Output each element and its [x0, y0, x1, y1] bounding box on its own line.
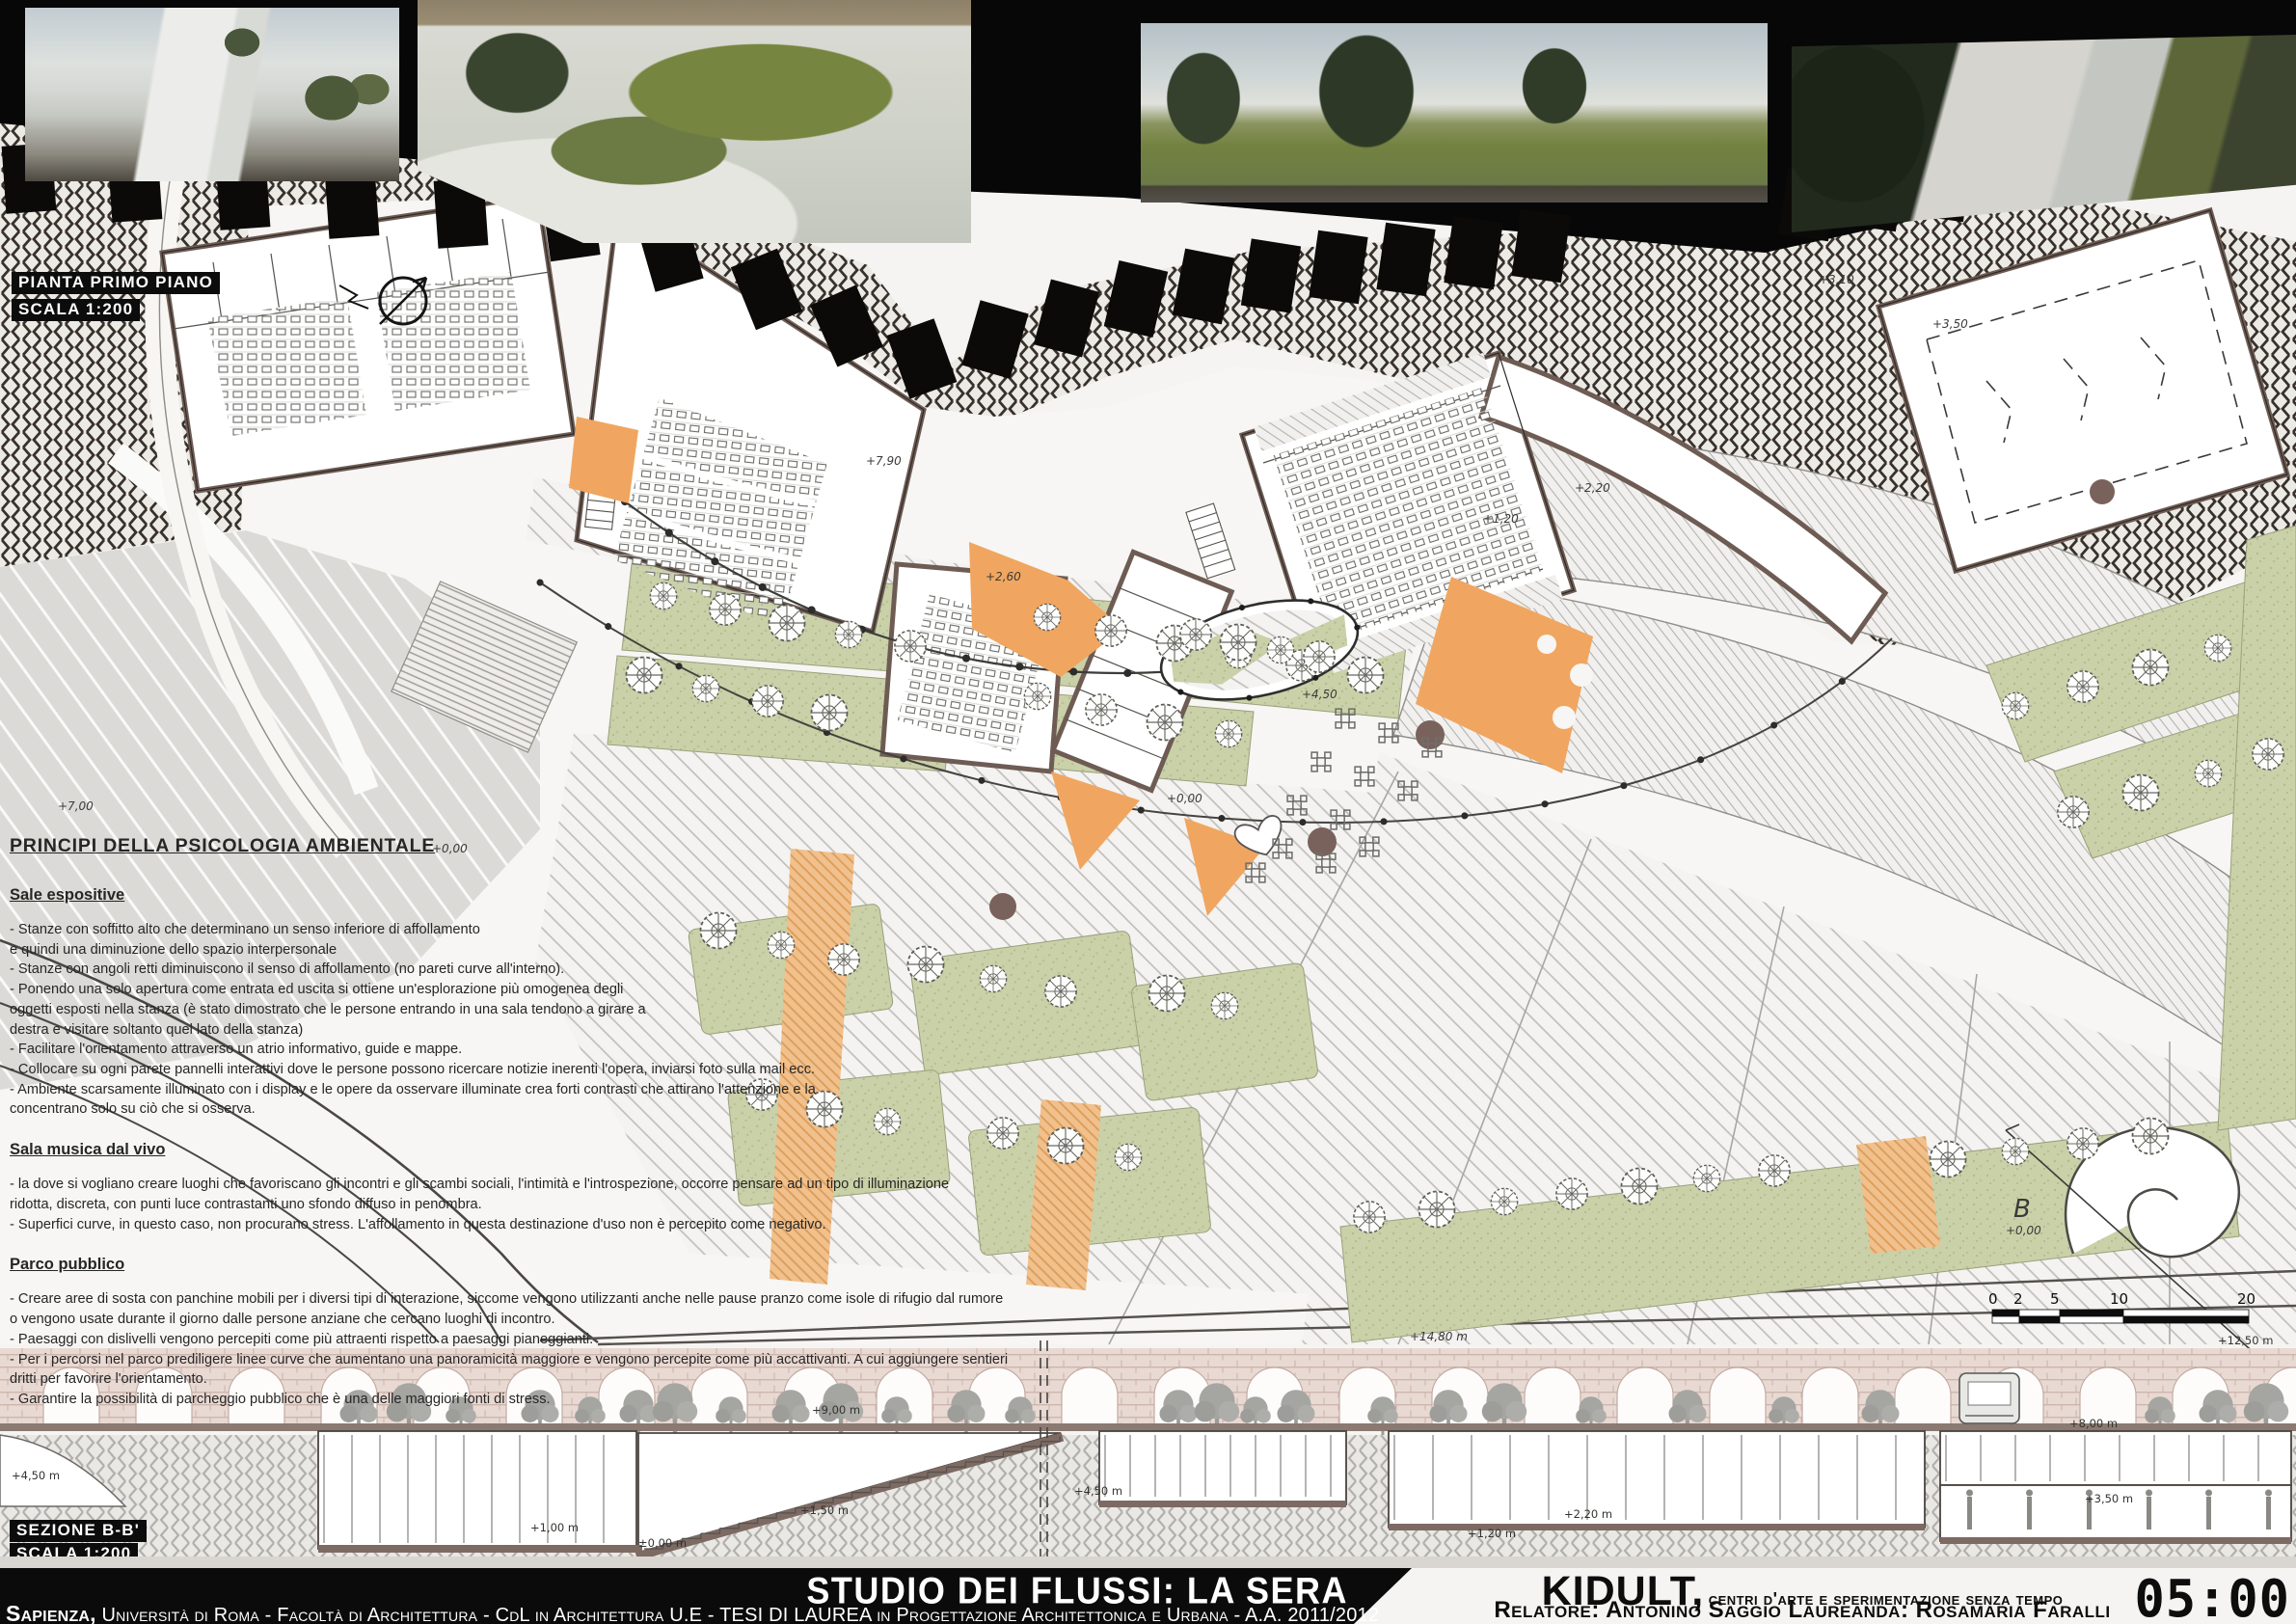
- tree-plan: [895, 631, 926, 662]
- skylight: [1309, 230, 1367, 305]
- tree-plan: [1147, 704, 1182, 740]
- tree-plan: [752, 686, 783, 717]
- section-title-parco-pubblico: Parco pubblico: [10, 1256, 1041, 1274]
- skylight: [1376, 223, 1435, 297]
- level-annotation: +1,00 m: [530, 1521, 579, 1534]
- roof-slab: [0, 1423, 2296, 1431]
- tree-plan: [1034, 604, 1060, 630]
- tree-plan: [2067, 1128, 2098, 1159]
- level-annotation: +3,50: [1932, 317, 1968, 331]
- arch: [1525, 1367, 1580, 1424]
- seats-fan-right: [376, 272, 530, 411]
- skylight: [1511, 209, 1570, 284]
- tree-plan: [1180, 619, 1211, 650]
- scale-label: 0: [1988, 1290, 1998, 1308]
- scale-label: 5: [2050, 1290, 2060, 1308]
- credits-line: Relatore: Antonino Saggio Laureanda: Ros…: [1435, 1597, 2170, 1624]
- level-annotation: +2,20: [1575, 481, 1610, 495]
- tree-plan: [692, 675, 718, 701]
- level-annotation: +7,90: [866, 454, 902, 468]
- tree-plan: [2132, 1118, 2168, 1153]
- level-annotation: +4,50 m: [1074, 1484, 1122, 1498]
- tree-plan: [2058, 797, 2089, 827]
- tree-plan: [1095, 615, 1126, 646]
- level-annotation: +8,00 m: [2069, 1417, 2118, 1430]
- level-annotation: +3,10: [1819, 273, 1854, 286]
- tree-plan: [2002, 1138, 2028, 1164]
- section-body-parco-pubblico: - Creare aree di sosta con panchine mobi…: [10, 1289, 1041, 1409]
- tree-plan: [2253, 739, 2283, 770]
- tree-plan: [1148, 975, 1184, 1011]
- arch: [1710, 1367, 1766, 1424]
- section-title-sale-espositive: Sale espositive: [10, 886, 1041, 905]
- section-title-sala-musica: Sala musica dal vivo: [10, 1141, 1041, 1159]
- tree-plan: [1418, 1191, 1454, 1227]
- sculpture: [2147, 1497, 2151, 1529]
- principles-text-block: PRINCIPI DELLA PSICOLOGIA AMBIENTALE Sal…: [10, 835, 1041, 1410]
- section-body-sale-espositive: - Stanze con soffitto alto che determina…: [10, 920, 1041, 1120]
- level-annotation: +2,60: [986, 570, 1021, 583]
- tree-plan: [2002, 692, 2028, 718]
- level-annotation: +3,50 m: [2085, 1492, 2133, 1505]
- skylight: [1241, 238, 1301, 312]
- level-annotation: +4,50 m: [12, 1469, 60, 1482]
- plan-scale-label: SCALA 1:200: [12, 299, 140, 321]
- sculpture: [2266, 1497, 2271, 1529]
- tree-plan: [1215, 720, 1241, 746]
- tree-plan: [710, 594, 741, 625]
- level-annotation: +0,00: [2006, 1224, 2041, 1237]
- sculpture: [2027, 1497, 2032, 1529]
- university-line: Sapienza, Università di Roma - Facoltà d…: [6, 1601, 1404, 1624]
- tram: [1959, 1373, 2019, 1423]
- tree-plan: [650, 582, 676, 609]
- tree-plan: [1267, 636, 1293, 663]
- tree-plan: [1024, 683, 1050, 709]
- university-name: Sapienza,: [6, 1601, 96, 1624]
- seats-fan-left: [207, 297, 366, 436]
- presentation-board: +0,00 +2,60 +1,20 +2,20 +4,50 +0,00 +3,1…: [0, 0, 2296, 1624]
- tree-plan: [1621, 1168, 1657, 1204]
- board-edge-strip: [0, 1556, 2296, 1568]
- level-annotation: +4,50: [1302, 688, 1337, 701]
- sculpture-head: [2146, 1490, 2152, 1497]
- level-annotation: +2,20 m: [1564, 1507, 1612, 1521]
- tree-plan: [1086, 694, 1117, 725]
- level-annotation: +1,20: [1483, 512, 1519, 526]
- tree-plan: [1491, 1188, 1517, 1214]
- principles-heading: PRINCIPI DELLA PSICOLOGIA AMBIENTALE: [10, 835, 1041, 857]
- arch: [1062, 1367, 1118, 1424]
- tree-plan: [1556, 1178, 1587, 1209]
- sculpture-head: [2265, 1490, 2272, 1497]
- tree-plan: [626, 657, 662, 692]
- scale-label: 20: [2237, 1290, 2255, 1308]
- sculpture-head: [1966, 1490, 1973, 1497]
- level-annotation: +0,00: [1167, 792, 1202, 805]
- tree-plan: [1347, 657, 1383, 692]
- tree-plan: [1354, 1202, 1385, 1232]
- tree-plan: [769, 605, 804, 640]
- sculpture-head: [2205, 1490, 2212, 1497]
- tree-plan: [1115, 1144, 1141, 1170]
- sculpture-head: [2026, 1490, 2033, 1497]
- scale-label: 2: [2013, 1290, 2023, 1308]
- tree-plan: [2122, 774, 2158, 810]
- section-body-sala-musica: - la dove si vogliano creare luoghi che …: [10, 1175, 1041, 1234]
- skylight: [1444, 216, 1502, 290]
- level-annotation: +7,00: [58, 799, 94, 813]
- university-details: Università di Roma - Facoltà di Architet…: [96, 1605, 1379, 1624]
- tree-plan: [1047, 1127, 1083, 1163]
- tree-plan: [1304, 641, 1335, 672]
- render-ramp-people: [25, 8, 399, 181]
- arch: [1895, 1367, 1951, 1424]
- section-marker-b: B: [2013, 1195, 2031, 1224]
- level-annotation: +1,50 m: [800, 1503, 849, 1517]
- tree-plan: [1759, 1155, 1790, 1186]
- tree-plan: [835, 621, 861, 647]
- tree-plan: [2204, 635, 2230, 661]
- level-annotation: +1,20 m: [1468, 1527, 1516, 1540]
- tree-plan: [2067, 671, 2098, 702]
- tree-plan: [811, 694, 847, 730]
- scale-label: 10: [2110, 1290, 2128, 1308]
- level-annotation: ±0,00 m: [638, 1536, 687, 1550]
- tree-plan: [2132, 649, 2168, 685]
- tree-plan: [1045, 976, 1076, 1007]
- render-courtyard-people: [1141, 23, 1768, 203]
- plan-title-label: PIANTA PRIMO PIANO: [12, 272, 220, 294]
- tree-plan: [1930, 1141, 1965, 1177]
- sculpture: [1967, 1497, 1972, 1529]
- tree-plan: [1220, 624, 1256, 660]
- tree-plan: [2195, 760, 2221, 786]
- section-title-label: SEZIONE B-B': [10, 1520, 147, 1542]
- arch: [1617, 1367, 1673, 1424]
- level-annotation: +12,50 m: [2218, 1334, 2273, 1347]
- tree-plan: [1693, 1165, 1719, 1191]
- arch: [1802, 1367, 1858, 1424]
- level-annotation: +14,80 m: [1410, 1330, 1468, 1343]
- tree-plan: [1211, 992, 1237, 1018]
- time-display: 05:00: [2134, 1570, 2290, 1624]
- sculpture: [2206, 1497, 2211, 1529]
